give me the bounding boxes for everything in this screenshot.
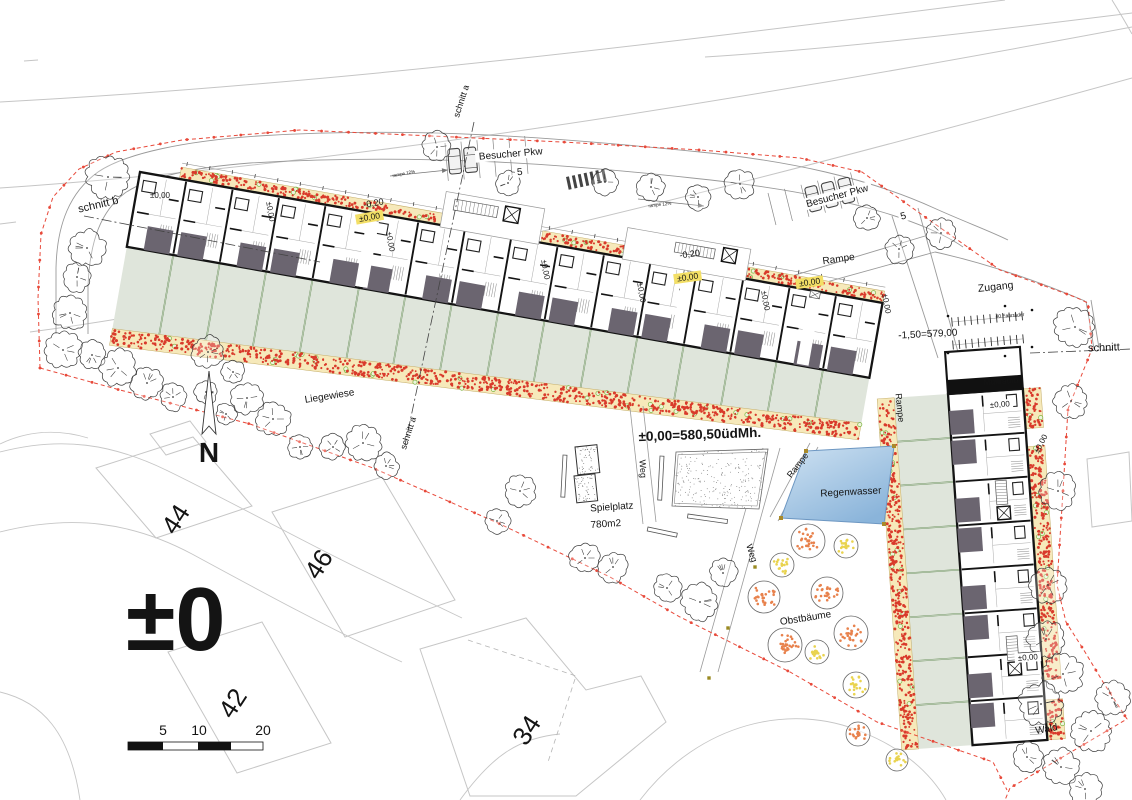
fruit-dot: [796, 545, 799, 548]
neighbor-house-outline: [1087, 452, 1132, 527]
boundary-dot: [349, 459, 352, 462]
fruit-dot: [852, 547, 855, 550]
tree-trunk: [232, 371, 234, 373]
stipple-dot: [703, 470, 704, 471]
survey-tick: [255, 174, 256, 178]
fruit-dot: [840, 540, 843, 543]
fruit-dot: [851, 630, 854, 633]
fruit-dot: [782, 648, 785, 651]
stipple-dot: [722, 473, 723, 474]
bench: [561, 455, 567, 497]
label-text: schnitt: [1088, 341, 1120, 354]
bike-rack-tick: [984, 338, 985, 347]
fruit-dot: [852, 639, 855, 642]
stipple-dot: [690, 486, 691, 487]
interior-wall: [1004, 703, 1005, 714]
fruit-dot: [837, 590, 840, 593]
survey-tick: [617, 238, 618, 242]
fruit-dot: [755, 599, 758, 602]
fruit-dot: [814, 650, 817, 653]
tree-trunk: [1084, 788, 1086, 790]
stipple-dot: [698, 478, 699, 479]
tree-trunk: [519, 490, 521, 492]
boundary-post: [947, 352, 950, 355]
stipple-dot: [751, 465, 752, 466]
fruit-dot: [810, 542, 813, 545]
stipple-dot: [676, 473, 677, 474]
fruit-dot: [764, 593, 767, 596]
stipple-dot: [717, 480, 718, 481]
stipple-dot: [703, 455, 704, 456]
fruit-dot: [763, 603, 766, 606]
stipple-dot: [685, 492, 686, 493]
stipple-dot: [689, 464, 690, 465]
interior-wall: [985, 440, 986, 451]
stipple-dot: [682, 487, 683, 488]
stipple-dot: [748, 469, 749, 470]
fruit-dot: [888, 759, 891, 762]
stipple-dot: [711, 476, 712, 477]
boundary-dot: [1066, 623, 1069, 626]
fruit-dot: [816, 588, 819, 591]
fruit-dot: [801, 546, 804, 549]
stipple-dot: [765, 452, 766, 453]
stipple-dot: [754, 493, 755, 494]
stipple-dot: [742, 496, 743, 497]
label-text: Weg: [744, 543, 759, 564]
pond-corner-marker: [779, 516, 783, 520]
stipple-dot: [731, 498, 732, 499]
boundary-dot: [522, 534, 525, 537]
boundary-dot: [266, 131, 269, 134]
boundary-dot: [1065, 293, 1068, 296]
boundary-dot: [38, 340, 41, 343]
stipple-dot: [719, 506, 720, 507]
terrace-patio: [951, 439, 977, 465]
tree-icon: [710, 558, 739, 587]
stipple-dot: [700, 482, 701, 483]
boundary-dot: [473, 511, 476, 514]
stipple-dot: [717, 498, 718, 499]
street-line: [0, 432, 88, 444]
stipple-dot: [748, 500, 749, 501]
label-liegewiese: Liegewiese: [304, 387, 356, 406]
fruit-dot: [859, 687, 862, 690]
tree-trunk: [866, 217, 868, 219]
stipple-dot: [696, 458, 697, 459]
fruit-dot: [783, 645, 786, 648]
fruit-dot: [754, 597, 757, 600]
contour-line: [0, 27, 1132, 188]
stipple-dot: [751, 498, 752, 499]
boundary-dot: [536, 139, 539, 142]
scale-seg: [198, 742, 231, 750]
scale-label: 20: [255, 722, 271, 738]
label-text: 40 Fahrräder: [995, 312, 1025, 320]
stipple-dot: [748, 492, 749, 493]
boundary-dot: [1015, 274, 1018, 277]
boundary-dot: [698, 149, 701, 152]
stipple-dot: [705, 496, 706, 497]
boundary-dot: [40, 232, 43, 235]
stipple-dot: [679, 503, 680, 504]
stipple-dot: [742, 482, 743, 483]
label-house-34: 34: [506, 710, 547, 751]
tree-trunk: [666, 587, 668, 589]
fruit-dot: [755, 587, 758, 590]
label-text: ±0,00: [990, 399, 1011, 409]
stipple-dot: [731, 504, 732, 505]
boundary-dot: [619, 582, 622, 585]
tree-trunk: [739, 183, 741, 185]
fruit-dot: [855, 687, 858, 690]
label-level-000-b2-right: ±0,00: [1032, 432, 1050, 454]
fruit-dot: [776, 560, 779, 563]
boundary-dot: [62, 184, 65, 187]
label-main-level: ±0,00=580,50üdMh.: [638, 425, 761, 444]
shrub-icon: [596, 391, 601, 396]
contour-line: [0, 0, 1005, 102]
boundary-dot: [159, 143, 162, 146]
fruit-dot: [779, 643, 782, 646]
boundary-dot: [424, 490, 427, 493]
fruit-dot: [811, 532, 814, 535]
label-text: Zugang: [977, 279, 1014, 295]
stipple-dot: [723, 505, 724, 506]
label-level-000-row1-left: ±0,00: [150, 191, 171, 200]
survey-tick: [187, 162, 188, 166]
plaza-paving: [672, 449, 768, 509]
stipple-dot: [750, 496, 751, 497]
road-edge: [935, 252, 1085, 301]
fruit-dot: [794, 641, 797, 644]
stipple-dot: [714, 477, 715, 478]
boundary-dot: [725, 151, 728, 154]
boundary-dot: [617, 144, 620, 147]
label-rampe-top: Rampe: [822, 252, 856, 267]
stipple-dot: [701, 505, 702, 506]
tree-icon: [654, 574, 682, 602]
fruit-dot: [863, 726, 866, 729]
stipple-dot: [694, 461, 695, 462]
bike-rack-tick: [958, 317, 959, 326]
fruit-dot: [782, 570, 785, 573]
stipple-dot: [676, 491, 677, 492]
bike-rack-tick: [997, 337, 998, 346]
boundary-dot: [1063, 463, 1066, 466]
fruit-dot: [757, 596, 760, 599]
label-weg-diagonal: Weg: [744, 543, 759, 564]
stipple-dot: [681, 466, 682, 467]
tree-trunk: [1111, 697, 1113, 699]
stipple-dot: [725, 486, 726, 487]
boundary-dot: [595, 569, 598, 572]
stipple-dot: [739, 487, 740, 488]
fruit-dot: [782, 643, 785, 646]
tree-trunk: [697, 196, 699, 198]
label-schnitt-a-mid: schnitt a: [398, 416, 418, 451]
stipple-dot: [700, 502, 701, 503]
stipple-dot: [745, 462, 746, 463]
boundary-post: [1004, 355, 1007, 358]
interior-wall: [994, 571, 995, 582]
tree-trunk: [940, 232, 942, 234]
stipple-dot: [714, 481, 715, 482]
stipple-dot: [675, 505, 676, 506]
tree-trunk: [1057, 490, 1059, 492]
north-label: N: [199, 437, 219, 468]
boundary-dot: [1123, 714, 1126, 717]
stipple-dot: [748, 478, 749, 479]
interior-wall: [998, 615, 999, 626]
stipple-dot: [682, 501, 683, 502]
fruit-dot: [781, 563, 784, 566]
stipple-dot: [745, 486, 746, 487]
stipple-dot: [701, 496, 702, 497]
contour-line: [705, 13, 1132, 57]
stipple-dot: [748, 473, 749, 474]
stipple-dot: [701, 490, 702, 491]
stipple-dot: [722, 494, 723, 495]
contour-line: [0, 222, 16, 224]
bike-rack-tick: [983, 315, 984, 324]
boundary-dot: [186, 138, 189, 141]
label-house-42: 42: [212, 683, 253, 724]
stipple-dot: [721, 453, 722, 454]
fruit-dot: [853, 693, 856, 696]
stipple-dot: [677, 483, 678, 484]
tree-icon: [1053, 307, 1095, 347]
fruit-dot: [859, 631, 862, 634]
boundary-dot: [91, 381, 94, 384]
bike-rack-tick: [991, 337, 992, 346]
boundary-dot: [48, 206, 51, 209]
survey-tick: [436, 206, 437, 210]
open-space: [561, 406, 908, 771]
stipple-dot: [748, 480, 749, 481]
boundary-dot: [1036, 770, 1039, 773]
stipple-dot: [683, 481, 684, 482]
tree-trunk: [898, 248, 900, 250]
stipple-dot: [679, 464, 680, 465]
boundary-dot: [1060, 516, 1063, 519]
stipple-dot: [754, 449, 755, 450]
stipple-dot: [696, 470, 697, 471]
fruit-dot: [853, 689, 856, 692]
stipple-dot: [741, 486, 742, 487]
shrub-icon: [898, 624, 902, 628]
path-marker: [726, 626, 729, 629]
tree-trunk: [436, 146, 438, 148]
neighbor-house-outline: [272, 477, 455, 637]
stipple-dot: [678, 492, 679, 493]
stipple-dot: [686, 476, 687, 477]
tree-icon: [1052, 384, 1087, 419]
tree-trunk: [699, 601, 701, 603]
stipple-dot: [722, 472, 723, 473]
fruit-dot: [806, 539, 809, 542]
fruit-dot: [852, 683, 855, 686]
boundary-dot: [738, 645, 741, 648]
scale-label: 10: [191, 722, 207, 738]
bench: [647, 527, 677, 537]
tree-icon: [52, 295, 86, 329]
terrace-patio: [955, 497, 981, 523]
stipple-dot: [704, 451, 705, 452]
stipple-dot: [680, 490, 681, 491]
label-rampe-12-right: rampe 12%: [648, 201, 671, 209]
stipple-dot: [688, 470, 689, 471]
label-text: rampe 12%: [648, 201, 671, 209]
fruit-dot: [813, 645, 816, 648]
fruit-dot: [847, 644, 850, 647]
stipple-dot: [726, 466, 727, 467]
tree-trunk: [385, 465, 387, 467]
fruit-dot: [781, 634, 784, 637]
fruit-dot: [864, 734, 867, 737]
stipple-dot: [725, 498, 726, 499]
fruit-dot: [852, 733, 855, 736]
label-schnitt-right: schnitt: [1088, 341, 1120, 354]
stipple-dot: [677, 475, 678, 476]
stipple-dot: [702, 464, 703, 465]
survey-tick: [844, 278, 845, 282]
stipple-dot: [719, 492, 720, 493]
stipple-dot: [706, 504, 707, 505]
label-text: ±0,00: [1032, 432, 1050, 454]
survey-tick: [232, 170, 233, 174]
stipple-dot: [735, 458, 736, 459]
fruit-dot: [808, 543, 811, 546]
label-house-46: 46: [298, 544, 339, 585]
site-plan-drawing: N51020±0schnitt aschnitt aschnitt bschni…: [0, 0, 1132, 800]
path-marker: [753, 565, 756, 568]
boundary-dot: [455, 136, 458, 139]
tree-icon: [724, 170, 754, 199]
fruit-dot: [846, 634, 849, 637]
stipple-dot: [716, 482, 717, 483]
fruit-dot: [836, 593, 839, 596]
boundary-dot: [644, 145, 647, 148]
tree-trunk: [1060, 766, 1062, 768]
stipple-dot: [716, 488, 717, 489]
label-text: Spielplatz: [590, 501, 634, 515]
stipple-dot: [689, 468, 690, 469]
fruit-dot: [852, 678, 855, 681]
fruit-dot: [826, 599, 829, 602]
stipple-dot: [692, 497, 693, 498]
fruit-dot: [826, 586, 829, 589]
tree-trunk: [76, 276, 78, 278]
stipple-dot: [703, 454, 704, 455]
boundary-dot: [999, 776, 1002, 779]
tree-trunk: [1062, 673, 1064, 675]
label-text: Liegewiese: [304, 387, 356, 406]
fruit-dot: [797, 645, 800, 648]
terrace-patio: [270, 248, 300, 276]
stipple-dot: [721, 475, 722, 476]
tree-trunk: [1074, 326, 1076, 328]
label-text: 34: [506, 710, 547, 751]
boundary-dot: [239, 134, 242, 137]
terrace-patio: [827, 347, 857, 375]
fruit-dot: [795, 645, 798, 648]
shrub-icon: [413, 380, 418, 385]
bike-rack-tick: [1023, 334, 1024, 343]
stipple-dot: [695, 501, 696, 502]
stipple-dot: [688, 494, 689, 495]
fruit-dot: [814, 652, 817, 655]
neighbor-house-outline: [420, 618, 666, 796]
stipple-dot: [730, 493, 731, 494]
fruit-dot: [773, 603, 776, 606]
terrace-patio: [456, 281, 486, 309]
tree-icon: [422, 130, 451, 161]
fruit-dot: [900, 764, 903, 767]
stipple-dot: [704, 481, 705, 482]
fruit-dot: [778, 567, 781, 570]
fruit-dot: [849, 728, 852, 731]
bench: [658, 456, 664, 500]
bike-rack-tick: [964, 316, 965, 325]
interior-wall: [988, 483, 989, 494]
fruit-dot: [838, 550, 841, 553]
stipple-dot: [750, 493, 751, 494]
boundary-dot: [448, 501, 451, 504]
fruit-dot: [807, 545, 810, 548]
stipple-dot: [716, 463, 717, 464]
boundary-dot: [401, 133, 404, 136]
fruit-dot: [770, 601, 773, 604]
sandbox: [574, 474, 598, 503]
stipple-dot: [759, 451, 760, 452]
stipple-dot: [736, 486, 737, 487]
fruit-dot: [762, 601, 765, 604]
terrace-patio: [734, 330, 764, 358]
fruit-dot: [841, 542, 844, 545]
boundary-post: [1031, 309, 1034, 312]
tree-trunk: [362, 442, 364, 444]
fruit-dot: [897, 755, 900, 758]
stipple-dot: [695, 478, 696, 479]
fruit-dot: [841, 636, 844, 639]
fruit-dot: [853, 686, 856, 689]
fruit-dot: [812, 653, 815, 656]
zebra-bar: [572, 175, 578, 188]
bike-rack-tick: [977, 315, 978, 324]
path-marker: [707, 676, 710, 679]
tree-trunk: [107, 176, 109, 178]
sandbox-frame: [574, 474, 598, 503]
bike-rack-tick: [978, 338, 979, 347]
boundary-dot: [39, 367, 42, 370]
stipple-dot: [738, 468, 739, 469]
label-text: Obstbäume: [779, 609, 832, 628]
fruit-dot: [829, 588, 832, 591]
stipple-dot: [695, 493, 696, 494]
bench: [687, 514, 727, 524]
terrace-patio: [949, 409, 975, 435]
pond-corner-marker: [882, 522, 886, 526]
stipple-dot: [751, 506, 752, 507]
contour-line: [24, 60, 38, 61]
fruit-dot: [846, 627, 849, 630]
boundary-dot: [65, 374, 68, 377]
fruit-dot: [850, 633, 853, 636]
stipple-dot: [686, 466, 687, 467]
fruit-dot: [781, 559, 784, 562]
stipple-dot: [718, 451, 719, 452]
